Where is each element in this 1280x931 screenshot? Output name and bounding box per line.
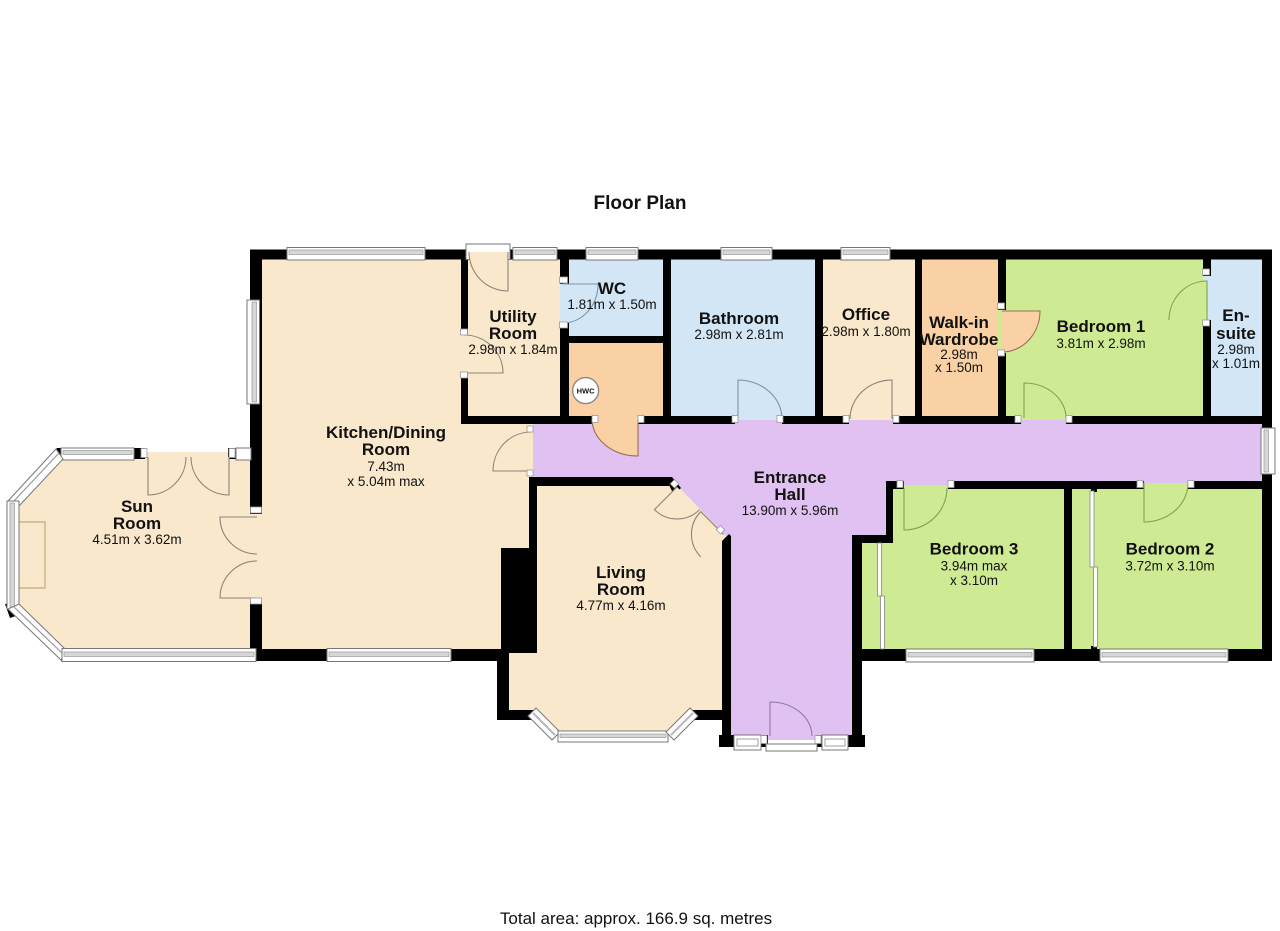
svg-text:Office: Office xyxy=(842,305,890,324)
svg-text:En-: En- xyxy=(1222,306,1249,325)
svg-text:Bathroom: Bathroom xyxy=(699,309,779,328)
svg-text:2.98m x 1.80m: 2.98m x 1.80m xyxy=(821,324,910,339)
svg-text:HWC: HWC xyxy=(577,386,595,395)
svg-text:2.98m x 1.84m: 2.98m x 1.84m xyxy=(468,342,557,357)
svg-text:x 3.10m: x 3.10m xyxy=(950,573,998,588)
svg-text:Bedroom 2: Bedroom 2 xyxy=(1126,540,1215,559)
svg-text:x 5.04m max: x 5.04m max xyxy=(347,474,425,489)
svg-text:Bedroom 3: Bedroom 3 xyxy=(930,540,1019,559)
svg-text:13.90m x 5.96m: 13.90m x 5.96m xyxy=(742,503,839,518)
svg-text:Room: Room xyxy=(362,440,410,459)
svg-text:Bedroom 1: Bedroom 1 xyxy=(1057,317,1146,336)
svg-text:Floor Plan: Floor Plan xyxy=(594,193,687,214)
svg-text:WC: WC xyxy=(598,279,626,298)
svg-text:2.98m: 2.98m xyxy=(1217,342,1255,357)
svg-text:suite: suite xyxy=(1216,324,1256,343)
svg-text:x 1.50m: x 1.50m xyxy=(935,360,983,375)
svg-text:Room: Room xyxy=(489,324,537,343)
svg-text:3.72m x 3.10m: 3.72m x 3.10m xyxy=(1125,559,1214,574)
svg-text:4.77m x 4.16m: 4.77m x 4.16m xyxy=(576,598,665,613)
svg-text:1.81m x 1.50m: 1.81m x 1.50m xyxy=(567,297,656,312)
svg-text:7.43m: 7.43m xyxy=(367,459,405,474)
svg-text:x 1.01m: x 1.01m xyxy=(1212,356,1260,371)
svg-text:2.98m x 2.81m: 2.98m x 2.81m xyxy=(694,327,783,342)
svg-text:3.81m x 2.98m: 3.81m x 2.98m xyxy=(1056,336,1145,351)
svg-text:Hall: Hall xyxy=(774,485,805,504)
svg-text:Room: Room xyxy=(113,514,161,533)
svg-text:Room: Room xyxy=(597,580,645,599)
svg-text:4.51m x 3.62m: 4.51m x 3.62m xyxy=(92,532,181,547)
svg-text:Total area: approx. 166.9 sq.: Total area: approx. 166.9 sq. metres xyxy=(500,909,772,928)
svg-text:3.94m max: 3.94m max xyxy=(941,559,1008,574)
